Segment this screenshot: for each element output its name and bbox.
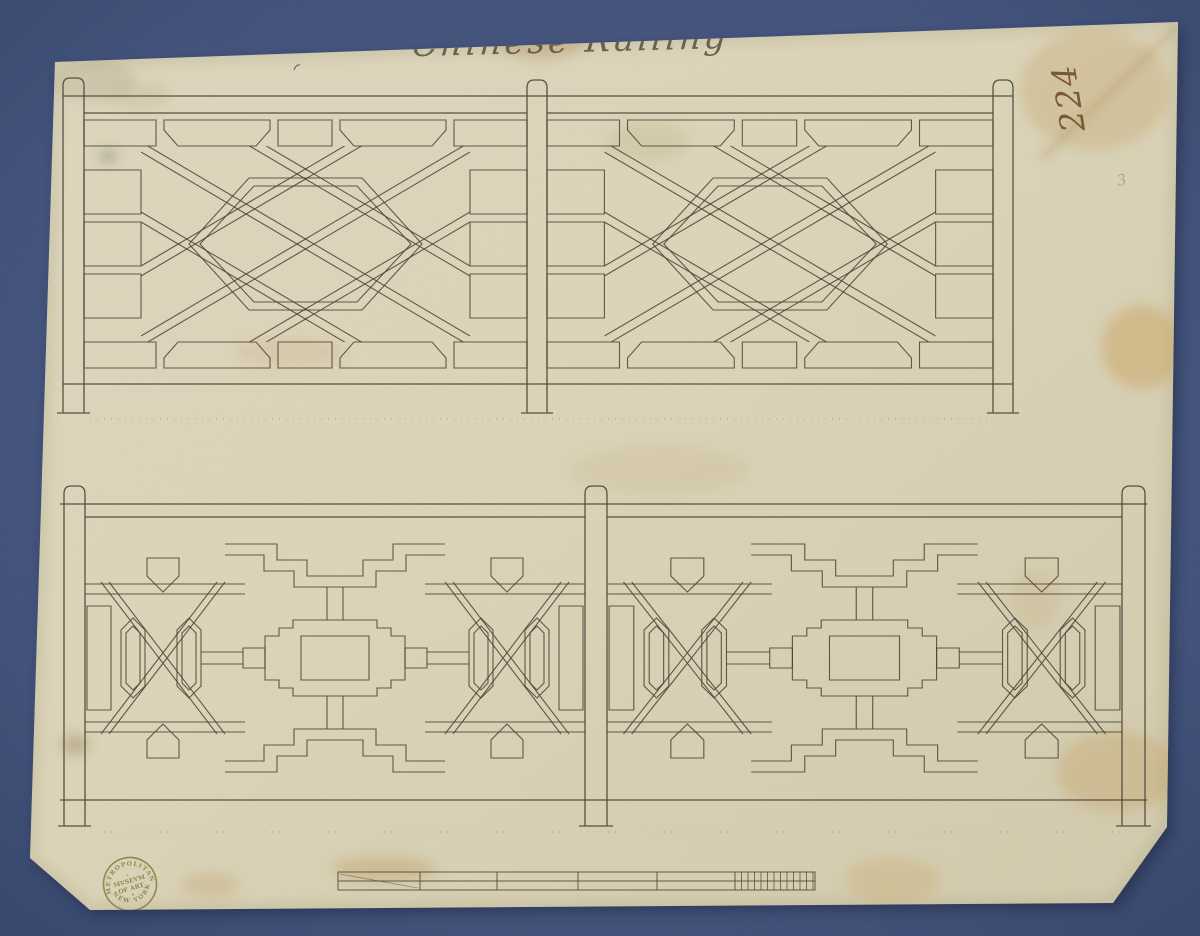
scanned-artwork-view: Chinese Railing 224 3 METROPOLITAN NEW Y…: [0, 0, 1200, 936]
artwork-canvas: Chinese Railing 224 3 METROPOLITAN NEW Y…: [0, 0, 1200, 936]
